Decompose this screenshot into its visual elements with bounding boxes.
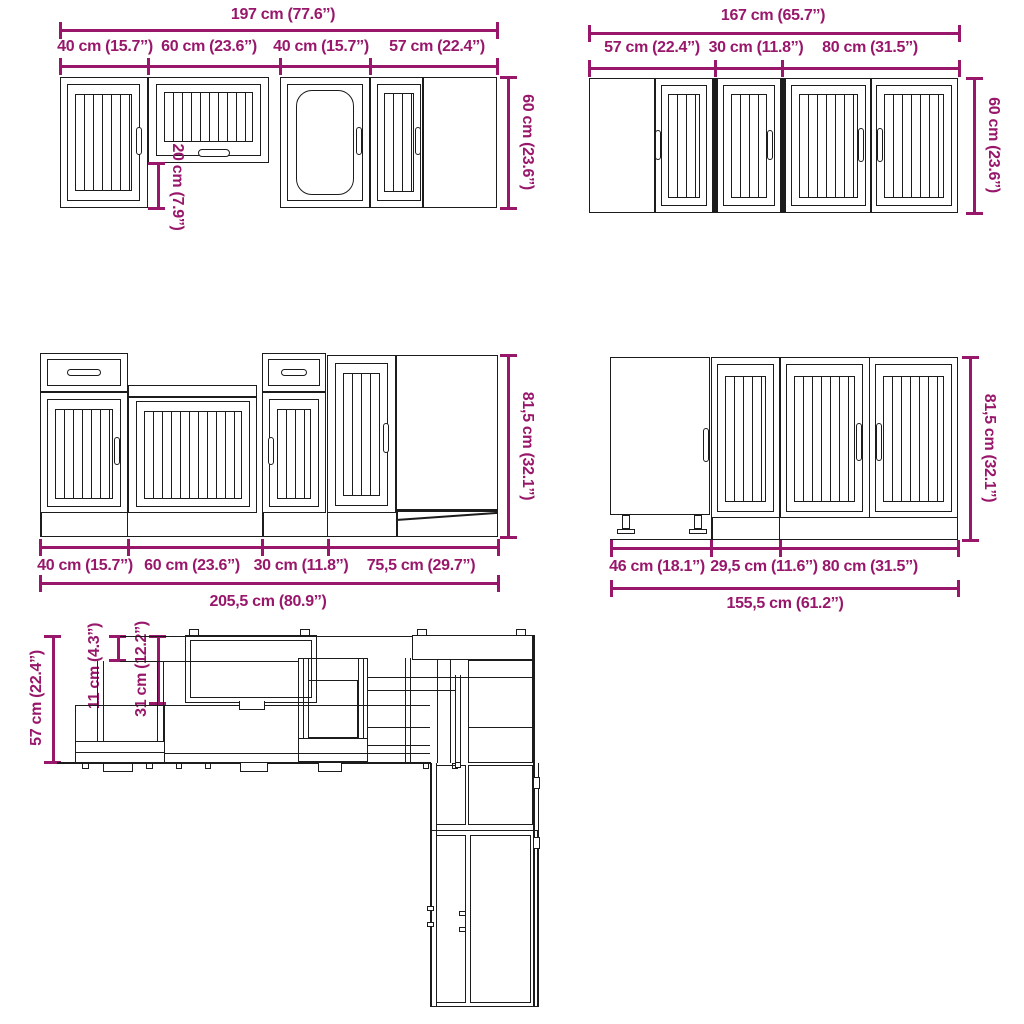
mount-tab bbox=[516, 629, 526, 636]
adjustable-foot-base bbox=[617, 529, 635, 534]
door-handle bbox=[356, 127, 362, 155]
handle-notch bbox=[318, 763, 342, 772]
dim-line bbox=[973, 78, 976, 213]
foot-mark bbox=[176, 763, 182, 769]
door-divider bbox=[869, 357, 871, 518]
handle-notch bbox=[239, 701, 265, 710]
hinge-mark bbox=[427, 922, 434, 927]
plan-wall-cabinet-60-inner bbox=[190, 640, 312, 698]
door-panel-slats bbox=[144, 411, 242, 499]
door-handle bbox=[767, 130, 773, 160]
door-panel-slats bbox=[799, 94, 858, 198]
flap-handle bbox=[198, 149, 230, 157]
door-handle bbox=[858, 128, 864, 162]
dim-tick bbox=[497, 539, 500, 556]
dim-tick bbox=[261, 539, 264, 556]
dim-tick bbox=[957, 580, 960, 597]
dim-label-height: 60 cm (23.6’’) bbox=[518, 94, 536, 190]
dim-label-segment: 40 cm (15.7’’) bbox=[37, 557, 133, 575]
door-handle bbox=[876, 423, 882, 461]
dim-tick bbox=[148, 162, 165, 165]
mount-tab bbox=[189, 629, 199, 636]
door-panel-slats bbox=[668, 94, 700, 198]
door-panel-slats bbox=[55, 409, 113, 499]
handle-notch bbox=[240, 763, 268, 772]
corner-line bbox=[368, 690, 455, 691]
hinge-mark bbox=[427, 906, 434, 911]
plinth-side bbox=[262, 513, 264, 537]
plinth-side bbox=[40, 513, 42, 537]
door-panel-slats bbox=[884, 94, 944, 198]
dim-tick bbox=[588, 60, 591, 77]
cabinet-side-line bbox=[450, 660, 451, 763]
door-handle bbox=[877, 128, 883, 162]
dim-line bbox=[117, 636, 120, 661]
dim-label-segment: 57 cm (22.4’’) bbox=[389, 38, 485, 56]
dim-tick bbox=[497, 575, 500, 592]
dim-line bbox=[60, 29, 497, 32]
dim-line bbox=[507, 77, 510, 208]
door-handle bbox=[136, 127, 142, 155]
dim-tick bbox=[44, 635, 61, 638]
adjustable-foot bbox=[694, 515, 702, 529]
dim-label-height: 81,5 cm (32.1’’) bbox=[518, 392, 536, 500]
foot-mark bbox=[423, 763, 429, 769]
door-panel-slats bbox=[384, 93, 414, 192]
foot-mark bbox=[205, 763, 211, 769]
dim-tick bbox=[500, 354, 517, 357]
dim-tick bbox=[127, 539, 130, 556]
front-band-line bbox=[75, 741, 165, 742]
dim-tick bbox=[958, 60, 961, 77]
dim-tick bbox=[957, 540, 960, 557]
dim-label-segment: 80 cm (31.5’’) bbox=[822, 558, 918, 576]
dim-tick bbox=[369, 58, 372, 75]
dim-tick bbox=[500, 536, 517, 539]
dim-tick bbox=[966, 212, 983, 215]
plan-door-panel bbox=[436, 835, 466, 1003]
door-handle bbox=[383, 423, 389, 453]
plinth-side bbox=[497, 512, 499, 537]
dim-tick bbox=[500, 207, 517, 210]
dim-tick bbox=[39, 575, 42, 592]
plinth-side bbox=[779, 518, 781, 540]
door-panel-slats bbox=[883, 376, 944, 502]
dim-line bbox=[507, 355, 510, 537]
cabinet-side-line bbox=[303, 658, 304, 738]
dim-label-height: 60 cm (23.6’’) bbox=[984, 97, 1002, 193]
dim-tick bbox=[327, 539, 330, 556]
dim-label-overhang: 11 cm (4.3’’) bbox=[86, 623, 104, 709]
door-panel-slats bbox=[75, 94, 132, 191]
dim-tick bbox=[779, 540, 782, 557]
dim-label-segment: 30 cm (11.8’’) bbox=[254, 557, 349, 575]
plinth-floor-line bbox=[40, 536, 498, 538]
reference-line bbox=[160, 705, 430, 706]
dim-line bbox=[40, 582, 498, 585]
base-corner-cabinet-46 bbox=[610, 357, 710, 515]
door-panel-slats bbox=[794, 376, 855, 502]
dim-line bbox=[52, 636, 55, 763]
run-back-line bbox=[538, 763, 539, 1007]
dim-label-segment: 40 cm (15.7’’) bbox=[273, 38, 369, 56]
door-panel-slats bbox=[731, 94, 767, 198]
door-handle bbox=[415, 127, 421, 155]
plinth-side bbox=[396, 512, 398, 537]
dim-tick bbox=[962, 539, 979, 542]
dim-label-total-width: 167 cm (65.7’’) bbox=[721, 7, 825, 25]
dim-label-segment: 60 cm (23.6’’) bbox=[144, 557, 240, 575]
corner-line bbox=[468, 727, 533, 728]
dim-tick bbox=[610, 580, 613, 597]
dim-line bbox=[969, 357, 972, 540]
corner-divider-line bbox=[410, 658, 411, 763]
mount-tab bbox=[300, 629, 310, 636]
handle-notch bbox=[103, 763, 133, 772]
dim-label-segment: 30 cm (11.8’’) bbox=[709, 39, 804, 57]
front-band-line bbox=[298, 738, 368, 739]
door-divider bbox=[870, 78, 872, 213]
adjustable-foot-base bbox=[689, 529, 707, 534]
dim-label-total-width: 155,5 cm (61.2’’) bbox=[726, 595, 843, 613]
dim-tick bbox=[147, 58, 150, 75]
plinth-floor-line bbox=[610, 539, 958, 541]
dim-tick bbox=[500, 76, 517, 79]
door-panel-slats bbox=[725, 376, 766, 502]
cabinet-side-line bbox=[358, 658, 359, 738]
dim-label-segment: 75,5 cm (29.7’’) bbox=[367, 557, 475, 575]
corner-line bbox=[368, 727, 430, 728]
door-handle bbox=[114, 437, 120, 465]
plan-right-cabinet bbox=[468, 660, 533, 763]
door-handle bbox=[856, 423, 862, 461]
dim-label-counter-depth: 57 cm (22.4’’) bbox=[28, 650, 46, 746]
door-handle bbox=[703, 428, 709, 462]
plinth-side bbox=[957, 518, 959, 540]
dim-tick bbox=[781, 60, 784, 77]
wall-corner-panel bbox=[589, 78, 655, 213]
cabinet-side-line bbox=[437, 660, 438, 763]
plan-cabinet-outline bbox=[75, 705, 165, 763]
corner-line bbox=[368, 745, 430, 746]
cabinet-dimension-diagram: 197 cm (77.6’’) 40 cm (15.7’’) 60 cm (23… bbox=[0, 0, 1024, 1024]
dim-tick bbox=[588, 25, 591, 42]
dim-tick bbox=[714, 60, 717, 77]
plan-door-panel bbox=[436, 765, 466, 825]
drawer-handle bbox=[281, 369, 307, 376]
dim-label-segment: 60 cm (23.6’’) bbox=[161, 38, 257, 56]
mount-tab bbox=[533, 837, 540, 849]
corner-panel-bevel bbox=[396, 512, 498, 521]
plan-wall-band bbox=[412, 635, 533, 660]
dim-label-total-width: 197 cm (77.6’’) bbox=[231, 6, 335, 24]
corner-panel-step bbox=[396, 509, 498, 511]
door-handle bbox=[655, 130, 661, 160]
dim-line bbox=[589, 32, 959, 35]
door-panel-slats bbox=[277, 409, 311, 499]
plinth-side bbox=[127, 513, 129, 537]
glass-panel bbox=[296, 90, 354, 195]
dim-tick bbox=[966, 77, 983, 80]
dim-tick bbox=[279, 58, 282, 75]
top-rail bbox=[129, 396, 256, 398]
corner-divider-line bbox=[405, 658, 406, 763]
dim-tick bbox=[148, 207, 165, 210]
cabinet-side-line bbox=[363, 658, 364, 738]
dim-line bbox=[40, 546, 498, 549]
dim-tick bbox=[958, 25, 961, 42]
door-handle bbox=[268, 437, 274, 465]
dim-label-total-width: 205,5 cm (80.9’’) bbox=[209, 593, 326, 611]
dim-tick bbox=[710, 540, 713, 557]
corner-divider-line bbox=[460, 675, 461, 763]
mount-tab bbox=[533, 777, 540, 789]
cabinet-divider bbox=[422, 77, 424, 208]
door-panel-slats bbox=[343, 373, 380, 496]
dim-label-height: 81,5 cm (32.1’’) bbox=[980, 394, 998, 502]
dim-tick bbox=[59, 22, 62, 39]
plinth-side bbox=[711, 518, 713, 540]
dim-tick bbox=[59, 58, 62, 75]
dim-tick bbox=[610, 540, 613, 557]
dim-label-segment: 46 cm (18.1’’) bbox=[609, 558, 705, 576]
dim-label-segment: 40 cm (15.7’’) bbox=[57, 38, 153, 56]
dim-tick bbox=[39, 539, 42, 556]
hinge-mark bbox=[459, 911, 466, 916]
dim-tick bbox=[496, 22, 499, 39]
hinge-mark bbox=[459, 927, 466, 932]
plan-door-panel bbox=[470, 835, 531, 1003]
dim-label-segment: 57 cm (22.4’’) bbox=[604, 39, 700, 57]
foot-mark bbox=[455, 762, 461, 768]
plinth-side bbox=[327, 513, 329, 537]
dim-line bbox=[157, 163, 160, 208]
door-panel-slats bbox=[164, 92, 253, 142]
base-corner-panel bbox=[396, 355, 498, 512]
dim-label-segment: 80 cm (31.5’’) bbox=[822, 39, 918, 57]
dim-tick bbox=[496, 58, 499, 75]
dim-tick bbox=[962, 356, 979, 359]
front-band-line bbox=[75, 752, 165, 753]
dim-line bbox=[611, 587, 958, 590]
dim-label-upper-gap: 20 cm (7.9’’) bbox=[168, 143, 186, 230]
dim-label-segment: 29,5 cm (11.6’’) bbox=[710, 558, 818, 576]
drawer-handle bbox=[67, 369, 101, 376]
dim-line bbox=[589, 67, 959, 70]
mount-tab bbox=[417, 629, 427, 636]
plan-drawer-box bbox=[308, 680, 358, 738]
dim-line bbox=[611, 547, 958, 550]
adjustable-foot bbox=[622, 515, 630, 529]
corner-divider-line bbox=[455, 675, 456, 763]
plan-corner-base bbox=[468, 765, 533, 825]
